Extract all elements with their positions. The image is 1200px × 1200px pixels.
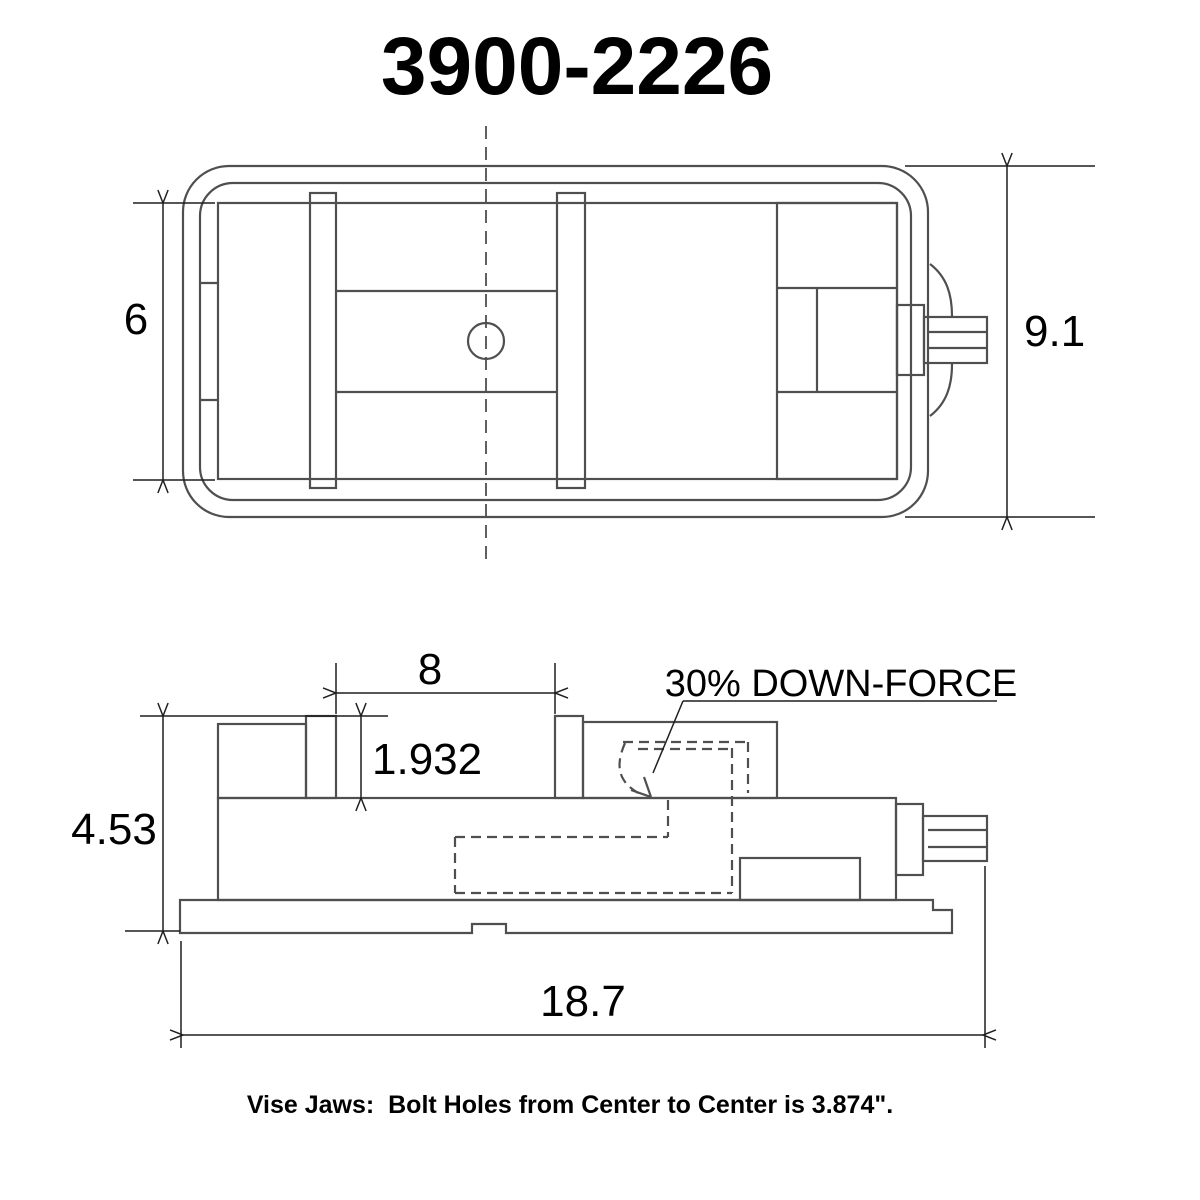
dimension-label: 9.1 [1024, 307, 1085, 356]
down-force-annotation: 30% DOWN-FORCE [620, 663, 1018, 797]
end-bracket [896, 804, 923, 875]
dimension-label: 6 [124, 295, 148, 344]
movable-jaw-plate [555, 716, 583, 798]
movable-jaw-bar [557, 193, 585, 488]
down-force-arrowhead [631, 777, 651, 797]
down-force-arrow-curve [620, 743, 640, 794]
hidden-screw-channel [455, 742, 748, 893]
fixed-jaw-block [218, 724, 306, 798]
drawing-title: 3900-2226 [381, 21, 773, 112]
fixed-jaw-plate [306, 716, 336, 798]
flange-arc [930, 364, 952, 416]
vise-dimension-drawing: 3900-2226 6 [0, 0, 1200, 1200]
slide-block [777, 203, 897, 479]
body-inner-outline [200, 183, 911, 500]
vise-body [218, 798, 896, 900]
dimension-label: 4.53 [71, 805, 157, 854]
down-force-label: 30% DOWN-FORCE [665, 663, 1018, 705]
dimension-label: 18.7 [540, 977, 626, 1026]
annotation-leader [653, 701, 683, 773]
base-plate [180, 900, 952, 933]
dimension-overall-width: 9.1 [905, 166, 1095, 517]
dimension-label: 1.932 [372, 735, 482, 784]
dimension-bed-width: 6 [124, 203, 215, 480]
drive-shaft-side [923, 816, 987, 861]
top-view: 6 9.1 [124, 126, 1095, 562]
fixed-jaw-bar [310, 193, 336, 488]
side-view: 30% DOWN-FORCE 8 1.932 4.53 18.7 [71, 645, 1017, 1048]
dimension-jaw-height: 1.932 [140, 716, 482, 798]
flange-arc [930, 264, 952, 316]
footnote: Vise Jaws: Bolt Holes from Center to Cen… [247, 1091, 893, 1119]
dimension-overall-height: 4.53 [71, 716, 180, 931]
drive-shaft [924, 317, 987, 363]
support-block [740, 858, 860, 900]
dimension-jaw-opening: 8 [336, 645, 555, 714]
dimension-label: 8 [418, 645, 442, 694]
